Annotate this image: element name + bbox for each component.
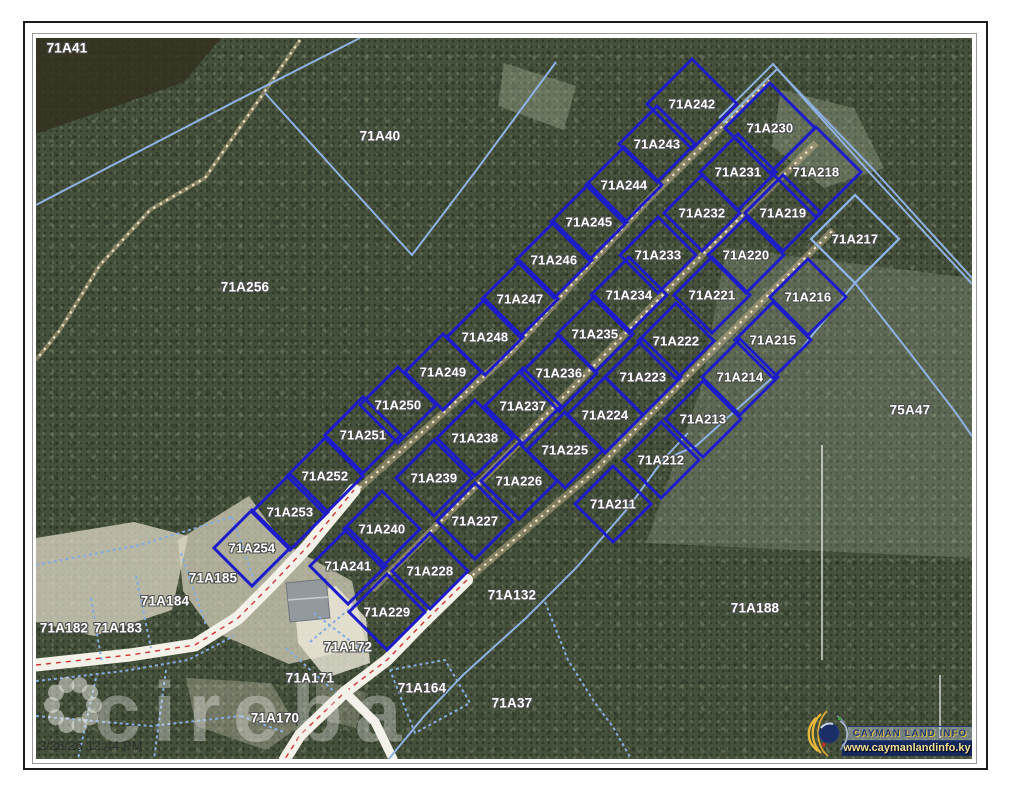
brand-swoosh-icon bbox=[806, 706, 860, 759]
map-overlay bbox=[36, 38, 972, 759]
map-export-page: cireba 3/26/26 12:44 PM CAYMAN LAND INFO… bbox=[0, 0, 1012, 794]
brand-title: CAYMAN LAND INFO bbox=[848, 726, 972, 741]
map-timestamp: 3/26/26 12:44 PM bbox=[39, 739, 142, 753]
brand-url: www.caymanlandinfo.ky bbox=[842, 741, 972, 756]
brand-stamp: CAYMAN LAND INFO www.caymanlandinfo.ky bbox=[752, 698, 972, 759]
map-canvas[interactable]: cireba 3/26/26 12:44 PM CAYMAN LAND INFO… bbox=[36, 38, 972, 759]
